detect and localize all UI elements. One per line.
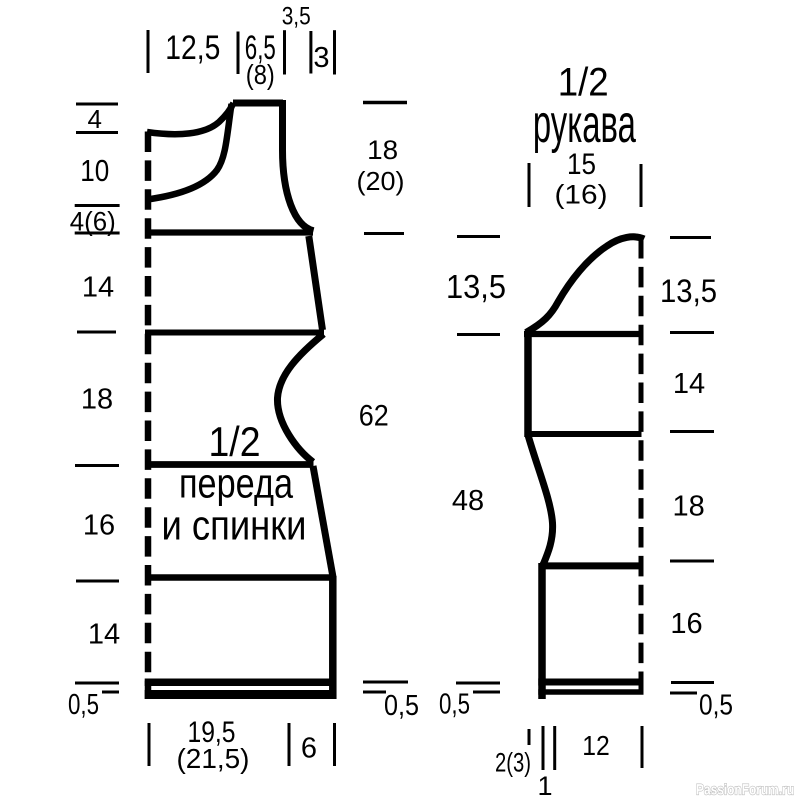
svg-text:PassionForum.ru: PassionForum.ru — [696, 782, 794, 799]
svg-text:(20): (20) — [357, 166, 405, 196]
svg-text:3: 3 — [313, 42, 329, 74]
svg-text:6: 6 — [301, 733, 317, 765]
svg-text:18: 18 — [81, 384, 113, 416]
svg-text:(8): (8) — [246, 59, 275, 90]
svg-text:12: 12 — [582, 730, 610, 761]
svg-text:10: 10 — [80, 153, 109, 188]
svg-text:0,5: 0,5 — [699, 690, 733, 722]
svg-text:3,5: 3,5 — [282, 3, 311, 31]
svg-text:рукава: рукава — [533, 94, 637, 154]
svg-text:13,5: 13,5 — [660, 273, 717, 309]
svg-text:12,5: 12,5 — [165, 29, 220, 67]
svg-text:14: 14 — [673, 368, 705, 400]
svg-text:0,5: 0,5 — [439, 689, 470, 721]
svg-text:14: 14 — [88, 619, 120, 651]
svg-text:1: 1 — [537, 771, 552, 800]
svg-text:переда: переда — [179, 460, 294, 507]
svg-text:0,5: 0,5 — [384, 690, 419, 722]
svg-text:15: 15 — [567, 148, 596, 181]
svg-text:48: 48 — [452, 485, 484, 517]
svg-text:2(3): 2(3) — [495, 748, 531, 778]
svg-text:(21,5): (21,5) — [177, 743, 250, 774]
svg-text:и спинки: и спинки — [162, 502, 307, 549]
svg-text:18: 18 — [367, 135, 398, 165]
svg-text:4: 4 — [87, 104, 101, 134]
svg-text:1/2: 1/2 — [209, 418, 261, 465]
svg-text:13,5: 13,5 — [446, 268, 506, 305]
svg-text:18: 18 — [672, 491, 704, 523]
svg-text:16: 16 — [83, 510, 115, 542]
svg-text:62: 62 — [359, 400, 389, 433]
svg-text:(16): (16) — [555, 180, 608, 210]
svg-text:0,5: 0,5 — [68, 689, 99, 721]
svg-text:16: 16 — [670, 608, 702, 640]
svg-text:4(6): 4(6) — [70, 207, 116, 237]
svg-text:14: 14 — [82, 272, 114, 304]
